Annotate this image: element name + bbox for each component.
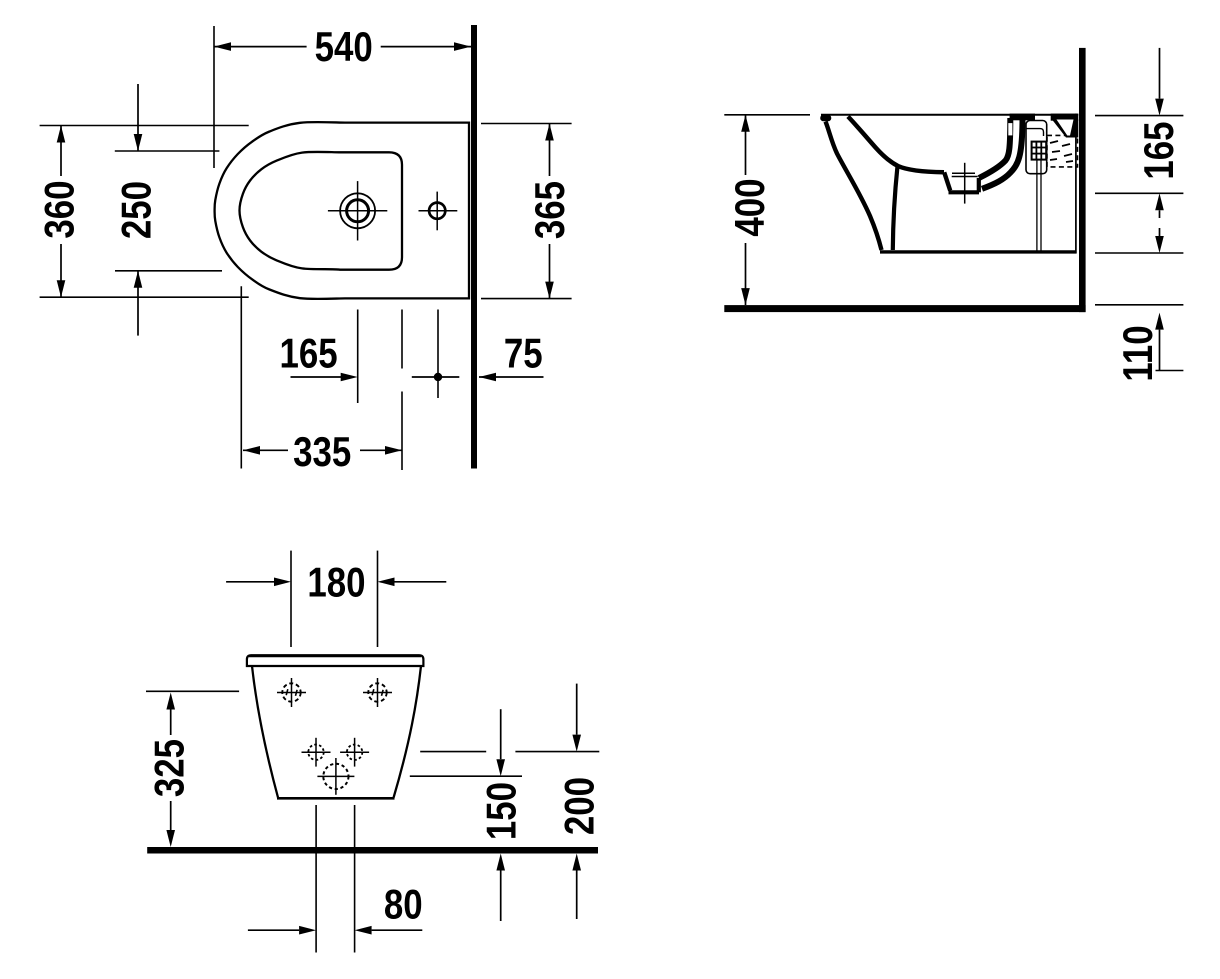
- svg-text:335: 335: [293, 429, 351, 476]
- svg-text:110: 110: [1115, 325, 1162, 381]
- svg-text:165: 165: [280, 330, 338, 377]
- svg-text:365: 365: [527, 181, 574, 239]
- svg-text:400: 400: [727, 178, 774, 236]
- svg-text:165: 165: [1136, 121, 1183, 179]
- svg-text:180: 180: [307, 559, 365, 606]
- svg-text:75: 75: [504, 330, 543, 377]
- svg-text:250: 250: [114, 181, 161, 239]
- svg-text:540: 540: [315, 24, 373, 71]
- svg-text:200: 200: [557, 777, 604, 835]
- svg-text:150: 150: [479, 782, 526, 840]
- svg-text:80: 80: [384, 882, 423, 929]
- svg-text:360: 360: [37, 180, 84, 238]
- svg-text:325: 325: [147, 739, 194, 797]
